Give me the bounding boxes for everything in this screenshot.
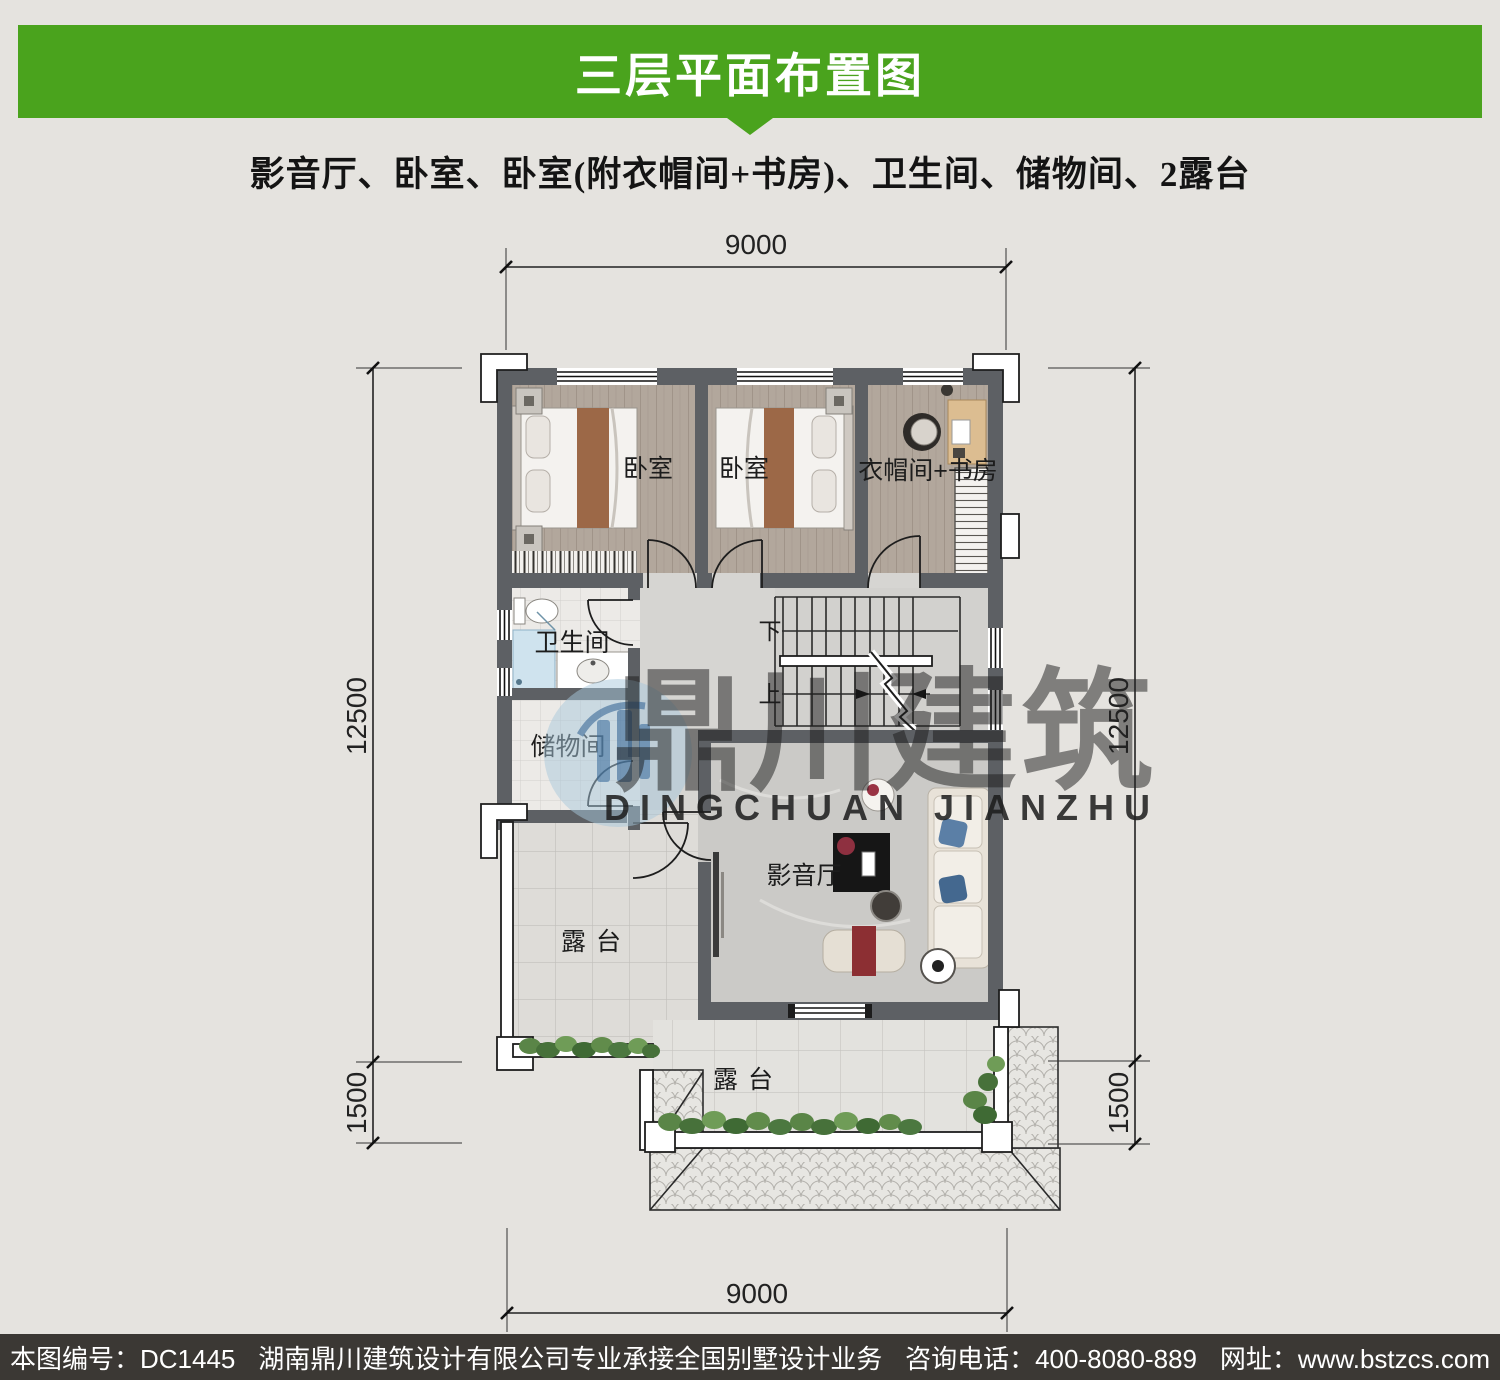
dim-bottom-value: 9000 <box>726 1278 788 1309</box>
floor-plan: 下 上 <box>330 215 1180 1340</box>
roof-band-bottom <box>650 1148 1060 1210</box>
roof-band-right <box>1008 1027 1058 1148</box>
dim-right-main-value: 12500 <box>1103 677 1134 755</box>
page-title: 三层平面布置图 <box>575 37 925 106</box>
banner-pointer-icon <box>727 118 773 135</box>
dim-right-eave-value: 1500 <box>1103 1072 1134 1134</box>
corner-column <box>1001 514 1019 558</box>
dim-top: 9000 <box>500 229 1012 350</box>
watermark: 鼎川建筑 DINGCHUAN JIANZHU <box>544 659 1160 828</box>
bathroom-label: 卫生间 <box>534 629 609 657</box>
dim-left: 12500 1500 <box>341 362 462 1149</box>
window <box>737 368 833 385</box>
bed1 <box>512 388 637 581</box>
watermark-en-text: DINGCHUAN JIANZHU <box>604 787 1160 828</box>
terrace-parapet <box>501 822 513 1038</box>
red-blanket <box>852 926 876 976</box>
dim-bottom: 9000 <box>501 1228 1013 1332</box>
drawing-number: 本图编号：DC1445 <box>10 1339 235 1376</box>
terrace-upper-label: 露台 <box>561 928 631 956</box>
window <box>497 610 512 640</box>
bedroom1-label: 卧室 <box>623 455 673 483</box>
footer-bar: 本图编号：DC1445 湖南鼎川建筑设计有限公司专业承接全国别墅设计业务 咨询电… <box>0 1334 1500 1380</box>
title-banner: 三层平面布置图 <box>18 25 1482 118</box>
cloak-study-label: 衣帽间+书房 <box>858 457 998 485</box>
terrace-parapet <box>653 1132 1008 1148</box>
watermark-cn-text: 鼎川建筑 <box>613 659 1157 806</box>
media-room-label: 影音厅 <box>766 862 841 890</box>
dim-left-main-value: 12500 <box>341 677 372 755</box>
phone-number: 咨询电话：400-8080-889 <box>905 1339 1197 1376</box>
terrace-lower-label: 露台 <box>713 1066 783 1094</box>
dim-top-value: 9000 <box>725 229 787 260</box>
dim-left-eave-value: 1500 <box>341 1072 372 1134</box>
round-rug <box>871 891 901 921</box>
window <box>788 1004 872 1018</box>
window <box>497 668 512 696</box>
terrace-upper-floor <box>513 810 698 1044</box>
terrace-column <box>982 1122 1012 1152</box>
stair-down-label: 下 <box>759 618 782 644</box>
corner-column <box>999 990 1019 1027</box>
room-summary-subtitle: 影音厅、卧室、卧室(附衣帽间+书房)、卫生间、储物间、2露台 <box>0 146 1500 197</box>
company-name: 湖南鼎川建筑设计有限公司专业承接全国别墅设计业务 <box>258 1339 882 1376</box>
floor-plan-drawing: 下 上 <box>330 215 1180 1340</box>
window <box>903 368 963 385</box>
bedroom2-label: 卧室 <box>719 455 769 483</box>
website: 网址：www.bstzcs.com <box>1220 1339 1490 1376</box>
tv-panel <box>713 852 719 957</box>
window <box>557 368 657 385</box>
